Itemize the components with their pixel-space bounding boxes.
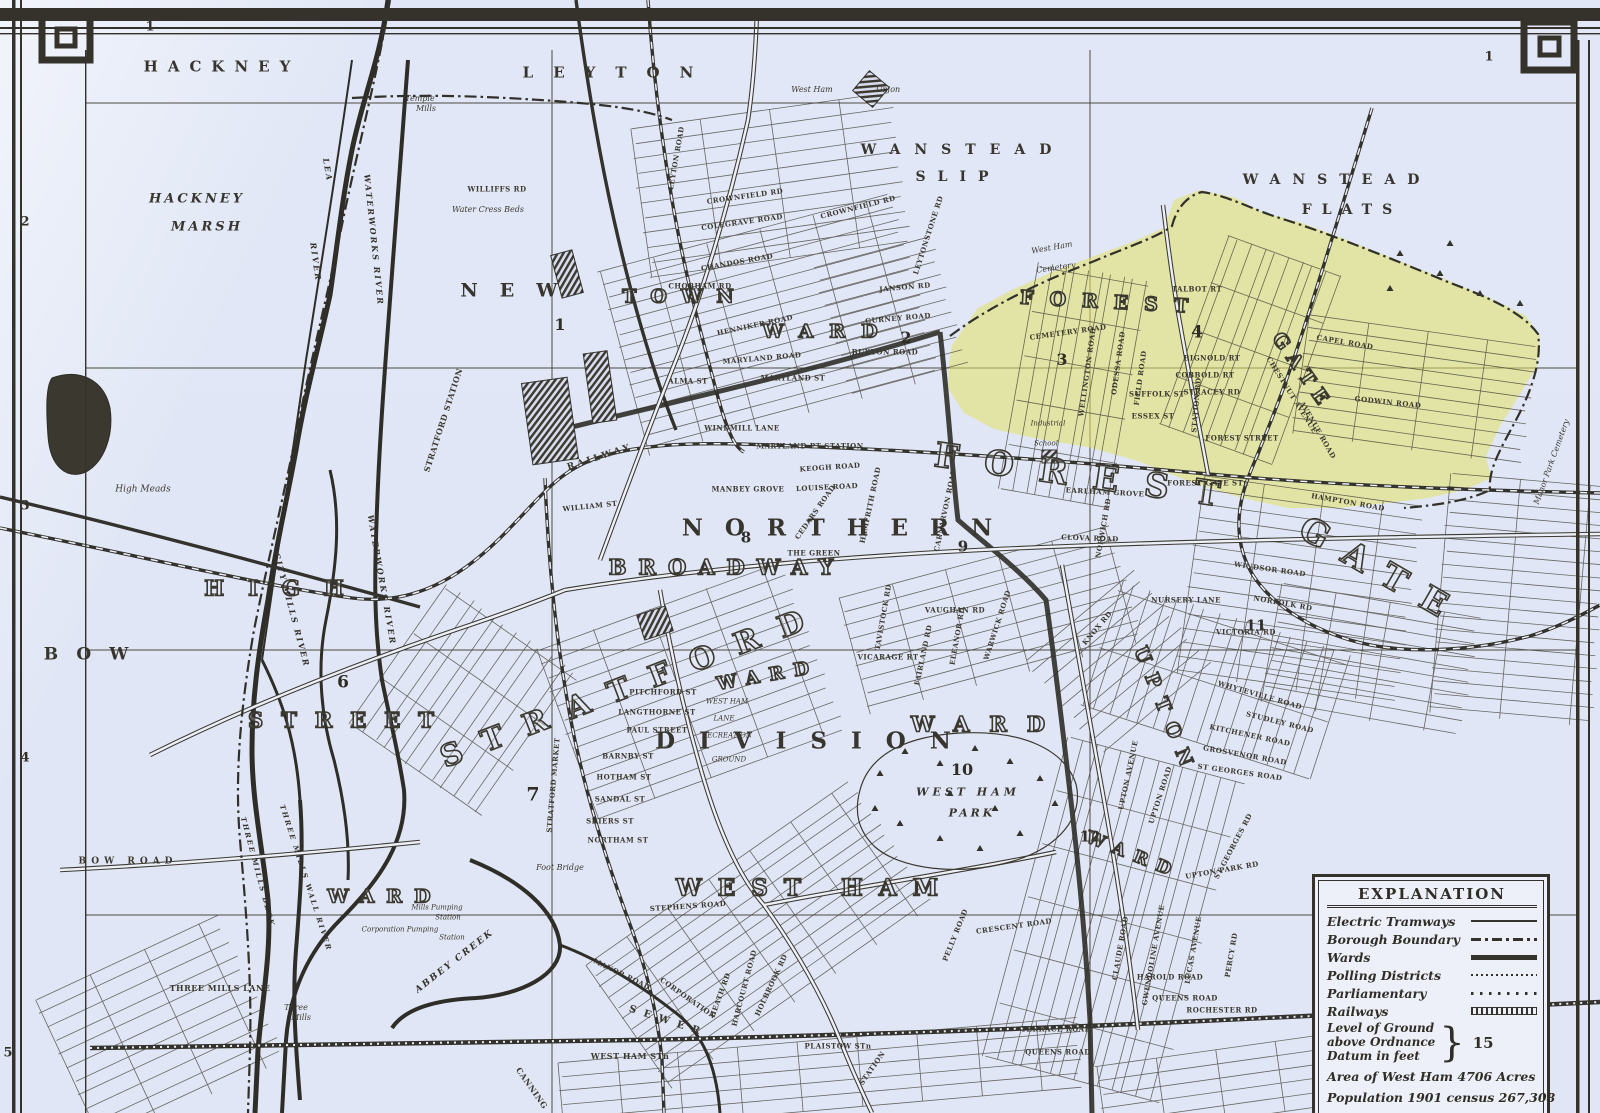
map-label: HACKNEY: [149, 193, 245, 206]
map-label: Station: [439, 935, 465, 942]
map-label: Mills: [291, 1014, 311, 1022]
map-label: High Meads: [115, 486, 170, 495]
map-label: PLAISTOW STn: [805, 1043, 872, 1050]
legend-label: Parliamentary: [1327, 986, 1426, 1001]
legend-row-wards: Wards: [1327, 948, 1537, 966]
legend-box: EXPLANATION Electric Tramways Borough Bo…: [1312, 874, 1550, 1113]
map-label: COBBOLD RT: [1175, 372, 1234, 379]
map-label: BOW ROAD: [79, 858, 178, 867]
map-label: FOREST GATE STn: [1167, 480, 1249, 487]
map-label: STREET: [248, 710, 452, 731]
map-label: SLIP: [915, 170, 1000, 184]
map-label: WINDMILL LANE: [704, 425, 780, 432]
map-label: School: [1034, 441, 1058, 448]
map-label: WEST HAM: [916, 787, 1020, 798]
map-label: West Ham: [791, 86, 833, 94]
grid-number: 1: [145, 21, 154, 34]
map-label: LANE: [714, 716, 735, 723]
level-of-ground-text: Level of Ground above Ordnance Datum in …: [1327, 1022, 1435, 1063]
legend-row-railways: Railways: [1327, 1002, 1537, 1020]
legend-label: Railways: [1327, 1004, 1388, 1019]
map-label: Temple: [405, 95, 434, 103]
map-label: 7: [526, 786, 539, 805]
map-label: Union: [876, 86, 900, 94]
map-label: VAUGHAN RD: [925, 607, 985, 614]
map-label: Water Cress Beds: [452, 206, 524, 214]
map-label: BIGNOLD RT: [1184, 355, 1241, 362]
map-label: QUEENS ROAD: [1152, 995, 1218, 1002]
map-label: NEW: [460, 282, 579, 301]
grid-number: 1: [1484, 51, 1493, 64]
map-label: MARYLAND ST: [761, 375, 826, 382]
map-label: BROADWAY: [609, 557, 845, 578]
level-value: 15: [1473, 1034, 1494, 1052]
map-label: NURSERY LANE: [1151, 597, 1221, 604]
borough-boundary-line-sample: [1471, 938, 1537, 941]
map-label: ALMA ST: [668, 378, 708, 385]
map-label: WEST HAM: [676, 877, 954, 900]
map-label: WEST HAM: [706, 699, 748, 706]
grid-number: 3: [20, 500, 29, 513]
legend-label: Wards: [1327, 950, 1370, 965]
map-label: 9: [958, 540, 968, 555]
map-label: Mills Pumping: [411, 905, 462, 912]
map-label: LEYTON: [523, 66, 714, 81]
map-label: LANGTHORNE ST: [618, 709, 695, 716]
map-label: ESSEX ST: [1132, 413, 1175, 420]
map-label: 4: [1191, 325, 1203, 342]
map-label: MANBEY GROVE: [712, 486, 785, 493]
map-label: NORTHAM ST: [588, 837, 649, 844]
map-label: TALBOT RT: [1172, 286, 1222, 293]
grid-number: 2: [20, 216, 29, 229]
map-label: CHOBHAM RD: [668, 283, 731, 290]
map-label: QUEENS ROAD: [1025, 1049, 1091, 1056]
map-label: VICTORIA RD: [1216, 629, 1276, 636]
railway-line-sample: [1471, 1007, 1537, 1015]
map-label: WANSTEAD: [1243, 173, 1432, 187]
polling-district-line-sample: [1471, 974, 1537, 976]
map-label: WILLIFFS RD: [467, 186, 526, 193]
legend-row-borough-boundary: Borough Boundary: [1327, 930, 1537, 948]
legend-row-tramways: Electric Tramways: [1327, 912, 1537, 930]
map-label: Corporation Pumping: [362, 927, 439, 934]
map-label: Foot Bridge: [536, 864, 584, 872]
map-label: WANSTEAD: [861, 143, 1066, 157]
map-label: 10: [951, 762, 973, 778]
legend-label: Electric Tramways: [1327, 914, 1455, 929]
map-label: WARD: [762, 323, 893, 342]
legend-row-polling-districts: Polling Districts: [1327, 966, 1537, 984]
map-label: RECREATION: [702, 733, 752, 740]
historical-map-page: HACKNEYLEYTONWANSTEADSLIPWANSTEADFLATSHA…: [0, 0, 1600, 1113]
map-label: MARYLAND PT STATION: [756, 443, 863, 450]
map-label: WARD: [911, 714, 1065, 735]
map-label: BUXTON ROAD: [852, 349, 919, 356]
grid-number: 4: [20, 752, 29, 765]
map-label: Industrial: [1031, 421, 1066, 428]
legend-label: Borough Boundary: [1327, 932, 1460, 947]
map-label: CLOVA ROAD: [1061, 533, 1119, 542]
map-label: SUFFOLK ST: [1129, 391, 1185, 398]
legend-population-line: Population 1901 census 267,308: [1327, 1090, 1537, 1105]
legend-label: Polling Districts: [1327, 968, 1441, 983]
map-label: VICARAGE RT: [857, 654, 918, 661]
map-label: 1: [554, 317, 565, 333]
map-label: THREE MILLS LANE: [170, 984, 271, 992]
map-label: PITCHFORD ST: [629, 689, 697, 696]
tramway-line-sample: [1471, 920, 1537, 922]
grid-number: 5: [3, 1047, 12, 1060]
map-label: 8: [741, 531, 751, 546]
map-label: WEST HAM STn: [591, 1052, 670, 1060]
map-label: PAUL STREET: [626, 727, 687, 734]
legend-area-line: Area of West Ham 4706 Acres: [1327, 1069, 1537, 1084]
legend-row-parliamentary: Parliamentary: [1327, 984, 1537, 1002]
map-label: BARNBY ST: [602, 753, 654, 760]
ward-line-sample: [1471, 955, 1537, 960]
map-label: ROCHESTER RD: [1186, 1007, 1257, 1014]
map-label: NORTHERN: [682, 517, 1014, 540]
map-label: Mills: [416, 105, 436, 113]
legend-level-of-ground: Level of Ground above Ordnance Datum in …: [1327, 1022, 1537, 1063]
map-label: HOTHAM ST: [597, 774, 652, 781]
map-label: PARK: [949, 808, 996, 819]
map-label: THE GREEN: [788, 550, 841, 557]
brace-glyph: }: [1439, 1025, 1464, 1061]
map-label: BOW: [44, 647, 147, 664]
map-label: SANDAL ST: [595, 796, 646, 803]
map-label: 6: [337, 675, 349, 692]
map-label: SKIERS ST: [586, 818, 634, 825]
map-label: Station: [435, 915, 461, 922]
map-label: FLATS: [1302, 203, 1402, 217]
legend-title: EXPLANATION: [1327, 885, 1537, 908]
map-label: Three: [284, 1004, 308, 1012]
map-label: HACKNEY: [144, 60, 301, 75]
parliamentary-line-sample: [1471, 992, 1537, 995]
map-label: GROUND: [712, 757, 746, 764]
map-label: 3: [1056, 352, 1067, 368]
map-label: 2: [900, 330, 911, 346]
map-label: MARSH: [171, 221, 243, 234]
map-label: FOREST STREET: [1205, 435, 1278, 442]
map-label: TERRACE ROAD: [1021, 1026, 1091, 1033]
